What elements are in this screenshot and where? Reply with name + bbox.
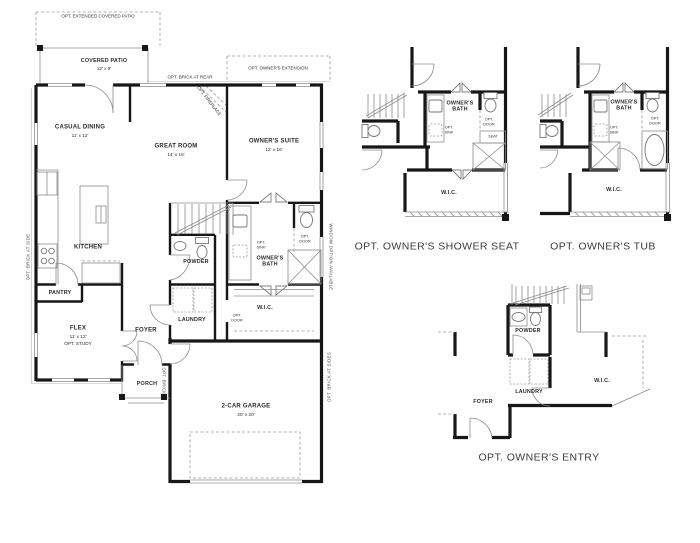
flex-label: FLEX	[70, 325, 86, 332]
covered-patio-dim: 12' x 9'	[97, 66, 112, 72]
casual-dining-label: CASUAL DINING	[55, 124, 105, 131]
owners-bath-label: OWNER'S BATH	[257, 256, 284, 269]
opt-sink-label: OPT. SINK	[257, 240, 266, 249]
casual-dining-dim: 11' x 12'	[72, 133, 89, 139]
great-room-dim: 14' x 16'	[167, 152, 184, 158]
d3-laundry-label: LAUNDRY	[515, 389, 543, 395]
d3-wic-label: W.I.C.	[594, 378, 610, 384]
kitchen-label: KITCHEN	[74, 244, 102, 251]
wic-label: W.I.C.	[257, 305, 273, 311]
covered-patio-label: COVERED PATIO	[81, 58, 127, 64]
opt-owners-extension-label: OPT. OWNER'S EXTENSION	[248, 65, 308, 70]
d1-seat-label: SEAT	[488, 135, 498, 140]
opt-brick-rear-label: OPT. BRICK AT REAR	[167, 74, 212, 79]
pantry-label: PANTRY	[49, 290, 72, 296]
d1-owners-bath-label: OWNER'S BATH	[447, 101, 474, 114]
d1-caption: OPT. OWNER'S SHOWER SEAT	[355, 241, 520, 254]
garage-dim: 20' x 20'	[237, 412, 254, 418]
floor-plan-canvas: OPT. EXTENDED COVERED PATIO COVERED PATI…	[0, 0, 700, 543]
great-room-label: GREAT ROOM	[155, 143, 198, 150]
d1-opt-door-label: OPT. DOOR	[483, 117, 494, 126]
d3-caption: OPT. OWNER'S ENTRY	[478, 452, 599, 465]
window-option-label: WINDOW OPTION AVAILABLE	[328, 224, 333, 291]
d1-opt-sink-label: OPT. SINK	[445, 125, 454, 134]
owners-suite-dim: 12' x 16'	[265, 147, 282, 153]
d2-owners-bath-label: OWNER'S BATH	[611, 100, 638, 113]
garage-apron-dashed	[190, 432, 300, 478]
laundry-appliances	[173, 288, 212, 312]
d2-wic-label: W.I.C.	[606, 187, 622, 193]
opt-extended-patio-label: OPT. EXTENDED COVERED PATIO	[61, 13, 134, 18]
kitchen-fixtures	[36, 170, 120, 284]
wic-shelving	[234, 290, 314, 297]
d3-foyer-label: FOYER	[473, 399, 493, 405]
d2-caption: OPT. OWNER'S TUB	[550, 241, 656, 254]
d2-opt-sink-label: OPT. SINK	[610, 125, 619, 134]
opt-door-wic-label: OPT. DOOR	[231, 313, 242, 322]
flex-dim: 11' x 12'	[70, 334, 87, 340]
owners-suite-label: OWNER'S SUITE	[249, 138, 299, 145]
foyer-label: FOYER	[135, 327, 157, 334]
porch-label: PORCH	[137, 381, 157, 387]
stairs	[170, 203, 233, 235]
opt-brick-sides-right-label: OPT. BRICK AT SIDES	[326, 352, 331, 402]
garage-label: 2-CAR GARAGE	[222, 403, 271, 410]
detail-shower-seat	[362, 47, 509, 221]
d1-wic-label: W.I.C.	[441, 190, 457, 196]
d3-powder-label: POWDER	[515, 328, 540, 334]
opt-brick-side-left-label: OPT. BRICK AT SIDE	[25, 234, 30, 281]
detail-owners-entry	[438, 284, 650, 438]
flex-opt-study-label: OPT. STUDY	[64, 341, 92, 347]
opt-door-bath-label: OPT. DOOR	[299, 234, 310, 243]
opt-brick-porch-label: OPT. BRICK	[161, 368, 166, 395]
laundry-label: LAUNDRY	[178, 317, 206, 323]
powder-label: POWDER	[183, 259, 208, 265]
owners-bath-fixtures	[229, 206, 321, 285]
detail-owners-tub	[538, 47, 671, 221]
d2-opt-door-label: OPT. DOOR	[649, 116, 660, 125]
